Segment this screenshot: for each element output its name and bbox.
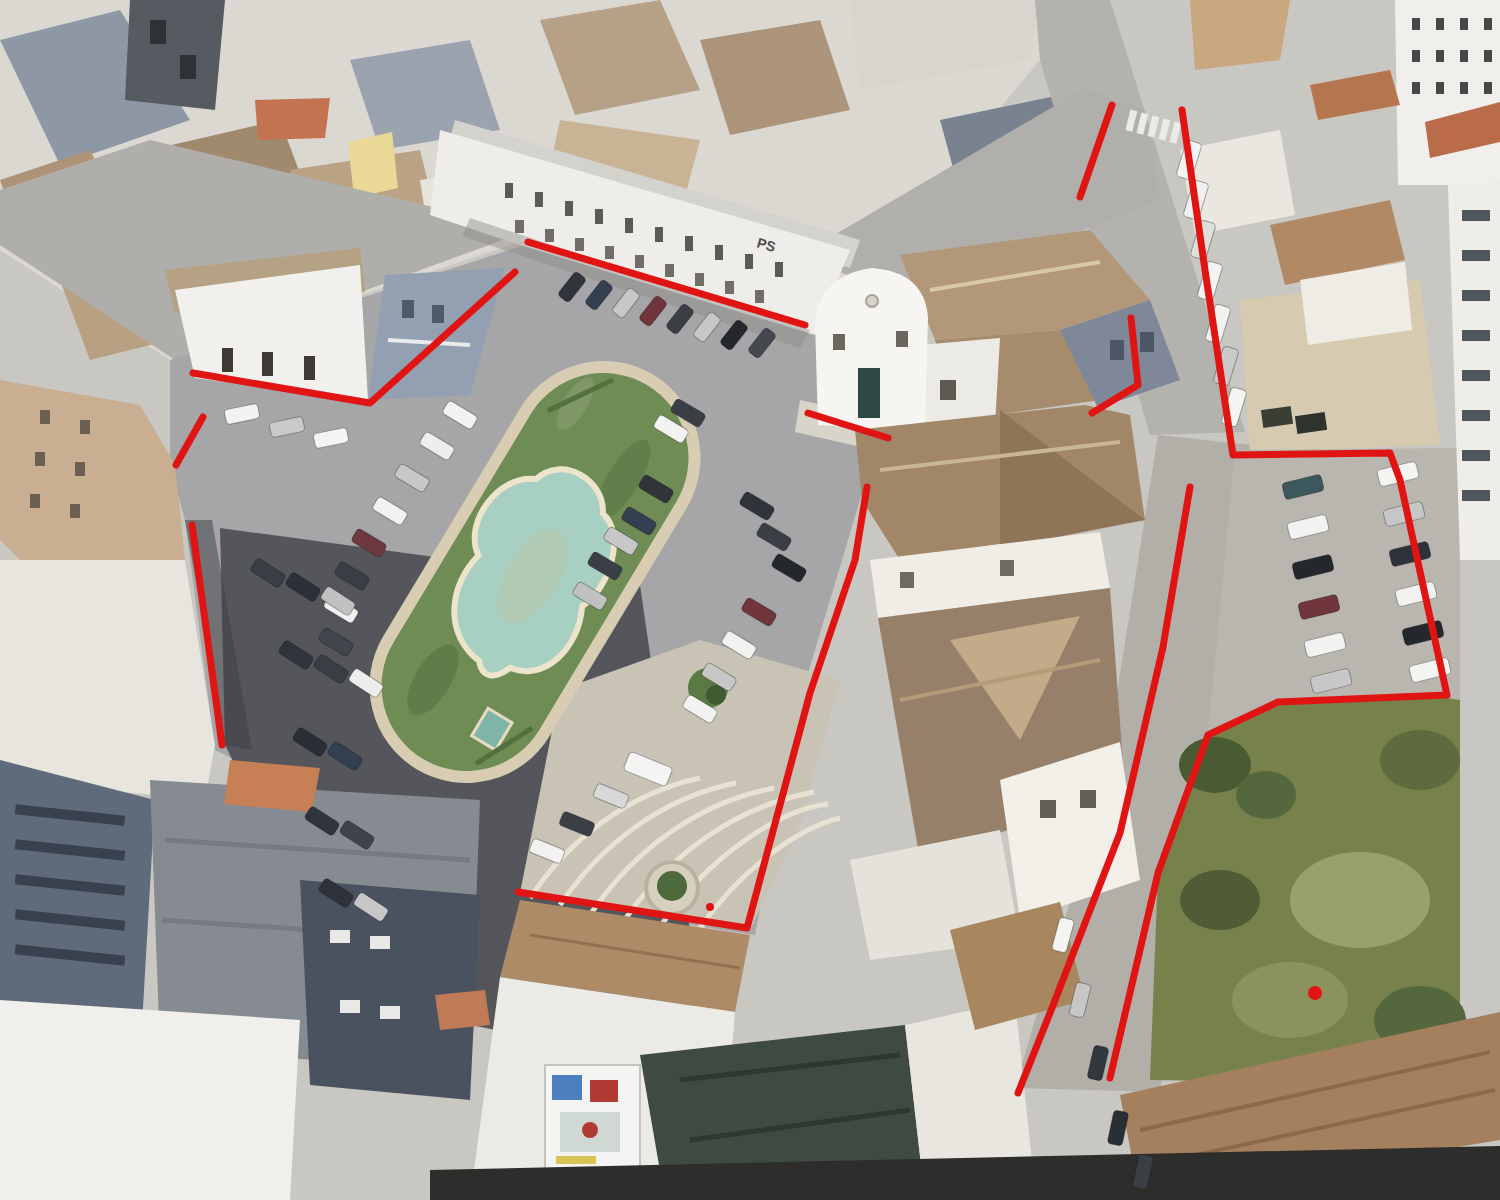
lot-tree xyxy=(1236,771,1296,819)
modern-block-facade xyxy=(0,760,155,1025)
window xyxy=(1412,82,1420,94)
window xyxy=(1000,560,1014,576)
dry-patch xyxy=(1232,962,1348,1038)
window xyxy=(725,281,734,294)
window xyxy=(1436,82,1444,94)
window-row xyxy=(1462,370,1490,381)
door xyxy=(222,348,233,372)
window xyxy=(80,420,90,434)
white-block xyxy=(0,1000,300,1200)
window xyxy=(1460,18,1468,30)
terracotta-bit xyxy=(435,990,490,1030)
window xyxy=(755,290,764,303)
window xyxy=(402,300,414,318)
window xyxy=(545,229,554,242)
door xyxy=(304,356,315,380)
window xyxy=(1460,50,1468,62)
window xyxy=(1460,82,1468,94)
window xyxy=(1412,50,1420,62)
dry-patch xyxy=(1290,852,1430,948)
lot-shrub xyxy=(1380,730,1460,790)
window xyxy=(75,462,85,476)
window-row xyxy=(1462,490,1490,501)
window xyxy=(775,262,783,277)
dark-facade xyxy=(300,880,480,1100)
walk-marker-dot xyxy=(706,903,714,911)
window xyxy=(575,238,584,251)
aerial-photo: PS xyxy=(0,0,1500,1200)
window xyxy=(745,254,753,269)
window-row xyxy=(1462,330,1490,341)
window xyxy=(535,192,543,207)
window xyxy=(565,201,573,216)
window xyxy=(330,930,350,943)
window xyxy=(833,334,845,350)
window xyxy=(35,452,45,466)
window xyxy=(370,936,390,949)
window xyxy=(605,246,614,259)
window xyxy=(340,1000,360,1013)
window xyxy=(380,1006,400,1019)
window xyxy=(70,504,80,518)
window xyxy=(655,227,663,242)
window xyxy=(515,220,524,233)
window xyxy=(40,410,50,424)
window xyxy=(896,331,908,347)
window xyxy=(900,572,914,588)
orange-roof xyxy=(255,98,330,140)
terracotta-roof-small xyxy=(224,760,320,812)
window xyxy=(505,183,513,198)
window xyxy=(30,494,40,508)
window xyxy=(1484,18,1492,30)
window xyxy=(665,264,674,277)
dark-modern-building xyxy=(125,0,225,110)
door xyxy=(262,352,273,376)
window xyxy=(1040,800,1056,818)
window xyxy=(1436,18,1444,30)
billboard-art xyxy=(556,1156,596,1164)
tan-roof xyxy=(1190,0,1290,70)
church-door xyxy=(858,368,880,418)
window xyxy=(1412,18,1420,30)
window xyxy=(180,55,196,79)
window xyxy=(432,305,444,323)
window-row xyxy=(1462,290,1490,301)
window xyxy=(1436,50,1444,62)
window-row xyxy=(1462,210,1490,221)
billboard-art xyxy=(552,1075,582,1100)
lot-marker-dot xyxy=(1308,986,1322,1000)
aerial-screenshot: PS xyxy=(0,0,1500,1200)
lot-scrub xyxy=(1180,870,1260,930)
window xyxy=(685,236,693,251)
window xyxy=(1484,82,1492,94)
window xyxy=(150,20,166,44)
window xyxy=(1484,50,1492,62)
window xyxy=(695,273,704,286)
white-building xyxy=(0,560,215,800)
window xyxy=(940,380,956,400)
window xyxy=(1140,332,1154,352)
yellow-facade xyxy=(348,132,398,198)
window-row xyxy=(1462,410,1490,421)
window-row xyxy=(1462,450,1490,461)
oculus-window xyxy=(866,295,878,307)
window-row xyxy=(1462,250,1490,261)
rooftop-billboard xyxy=(545,1065,640,1170)
billboard-art xyxy=(582,1122,598,1138)
window xyxy=(715,245,723,260)
window xyxy=(625,218,633,233)
planter-bush xyxy=(657,871,687,901)
billboard-art xyxy=(590,1080,618,1102)
window xyxy=(595,209,603,224)
window xyxy=(1110,340,1124,360)
window xyxy=(1080,790,1096,808)
window xyxy=(635,255,644,268)
